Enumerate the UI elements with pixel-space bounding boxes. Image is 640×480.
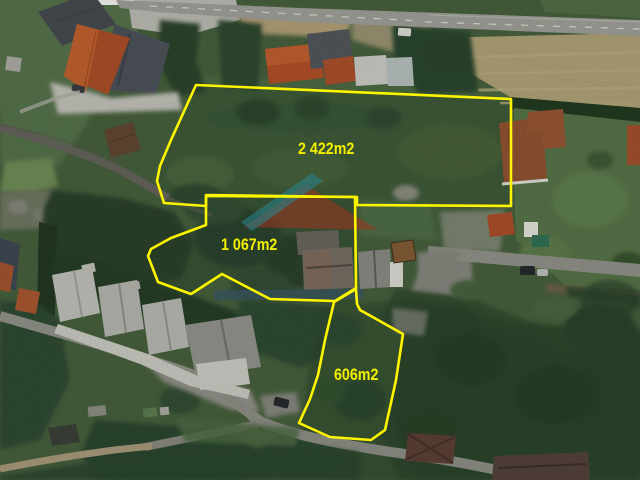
svg-text:606m2: 606m2	[334, 366, 379, 384]
svg-text:2 422m2: 2 422m2	[298, 140, 355, 158]
svg-text:1 067m2: 1 067m2	[221, 236, 278, 254]
